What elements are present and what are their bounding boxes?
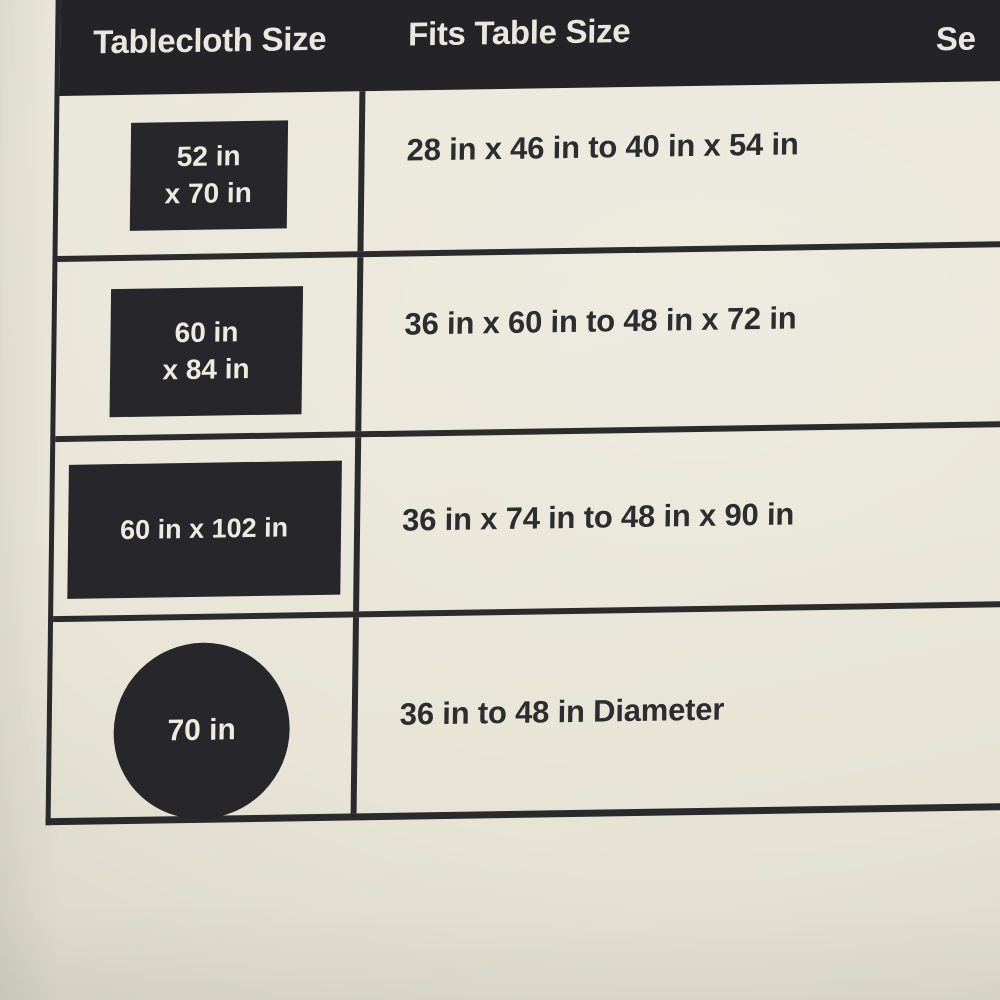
header-tablecloth-size: Tablecloth Size: [93, 20, 327, 62]
tablecloth-size-cell: 60 in x 102 in: [53, 437, 355, 616]
fits-size-cell: 36 in x 74 in to 48 in x 90 in: [359, 426, 1000, 611]
size-swatch-circle: 70 in: [113, 641, 291, 820]
fits-size-cell: 28 in x 46 in to 40 in x 54 in 4: [363, 80, 1000, 251]
swatch-label-line: x 70 in: [164, 175, 252, 213]
size-swatch-rectangle: 60 in x 84 in: [110, 286, 304, 417]
tablecloth-size-cell: 70 in: [51, 617, 353, 818]
swatch-label-line: 60 in: [174, 314, 238, 352]
size-swatch-wide-rectangle: 60 in x 102 in: [67, 461, 342, 599]
size-chart-table: Tablecloth Size Fits Table Size Se 52 in…: [46, 0, 1000, 825]
swatch-label-line: 52 in: [177, 138, 241, 176]
fits-size-cell: 36 in to 48 in Diameter: [357, 606, 1000, 813]
swatch-label-line: x 84 in: [162, 351, 250, 389]
table-row: 60 in x 84 in 36 in x 60 in to 48 in x 7…: [55, 240, 1000, 436]
fits-text: 36 in x 74 in to 48 in x 90 in: [402, 496, 794, 538]
swatch-label-line: 60 in x 102 in: [120, 511, 289, 549]
table-header-row: Tablecloth Size Fits Table Size Se: [59, 0, 1000, 96]
fits-size-cell: 36 in x 60 in to 48 in x 72 in 6: [361, 246, 1000, 431]
tablecloth-size-cell: 60 in x 84 in: [55, 257, 357, 436]
fits-text: 36 in x 60 in to 48 in x 72 in: [404, 300, 796, 342]
photo-background: Tablecloth Size Fits Table Size Se 52 in…: [0, 0, 1000, 1000]
header-fits-table-size: Fits Table Size: [408, 12, 631, 54]
fits-text: 28 in x 46 in to 40 in x 54 in: [406, 126, 798, 168]
table-row: 60 in x 102 in 36 in x 74 in to 48 in x …: [53, 420, 1000, 616]
tablecloth-size-cell: 52 in x 70 in: [58, 91, 360, 256]
header-seats-partial: Se: [936, 20, 976, 59]
fits-text: 36 in to 48 in Diameter: [400, 692, 725, 733]
table-row: 52 in x 70 in 28 in x 46 in to 40 in x 5…: [58, 80, 1000, 256]
table-row: 70 in 36 in to 48 in Diameter: [51, 600, 1000, 818]
size-swatch-rectangle: 52 in x 70 in: [129, 120, 287, 231]
swatch-label-line: 70 in: [167, 710, 236, 751]
